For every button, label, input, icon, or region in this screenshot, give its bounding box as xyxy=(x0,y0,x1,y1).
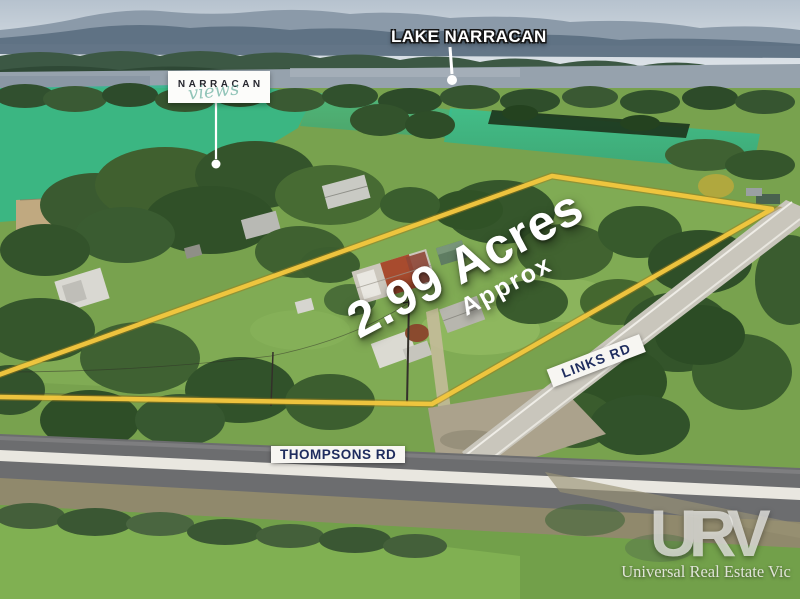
thompsons-road-banner: THOMPSONS RD xyxy=(271,446,405,463)
agency-tagline: Universal Real Estate Vic xyxy=(612,562,800,582)
agency-watermark: URV Universal Real Estate Vic xyxy=(612,500,800,582)
estate-script-text: views xyxy=(187,78,240,104)
lake-label: LAKE NARRACAN xyxy=(391,27,547,47)
agency-logo: URV xyxy=(612,500,800,566)
aerial-photo-scene: LAKE NARRACAN NARRACAN views 2.99 Acres … xyxy=(0,0,800,599)
lake-pointer-line xyxy=(450,47,452,74)
lake-pointer-dot-icon xyxy=(447,75,457,85)
estate-card: NARRACAN views xyxy=(168,71,270,103)
estate-pointer-dot-icon xyxy=(212,160,221,169)
